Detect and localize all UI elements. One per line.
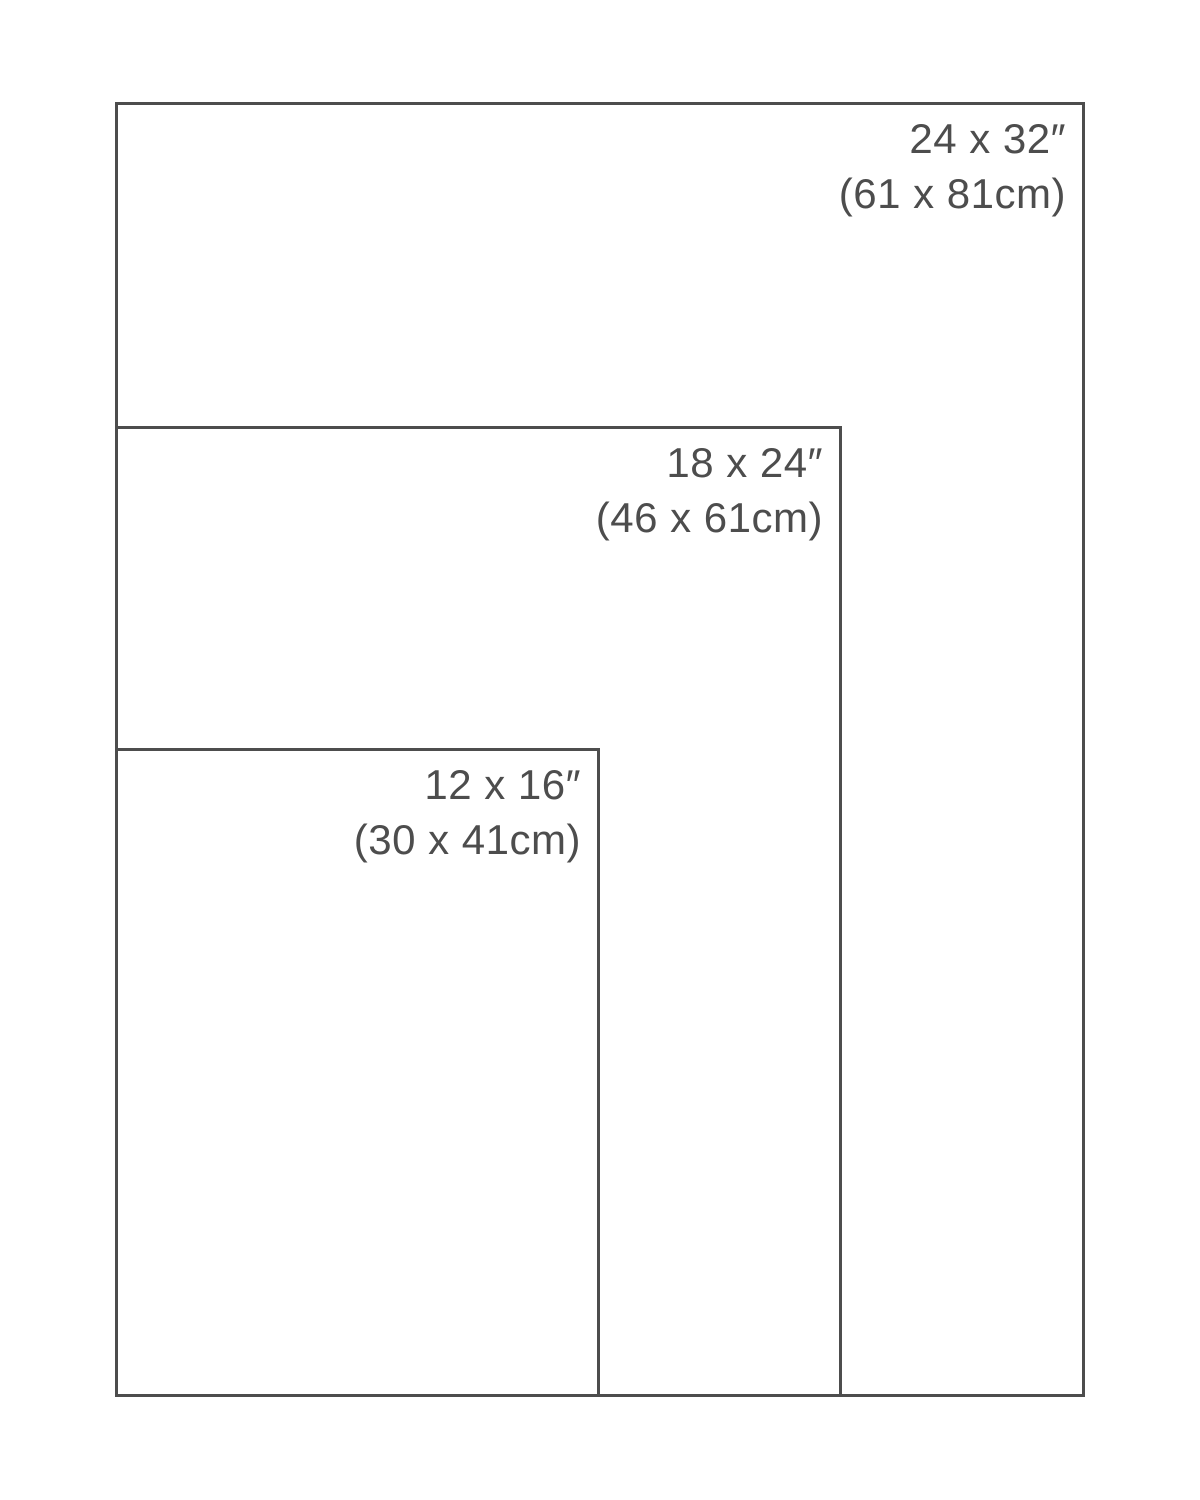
size-rect-12x16: 12 x 16″ (30 x 41cm): [115, 748, 600, 1397]
size-label-18x24: 18 x 24″ (46 x 61cm): [596, 435, 823, 545]
size-label-12x16-inches: 12 x 16″: [354, 757, 581, 812]
size-label-12x16: 12 x 16″ (30 x 41cm): [354, 757, 581, 867]
size-label-24x32: 24 x 32″ (61 x 81cm): [839, 111, 1066, 221]
size-label-18x24-cm: (46 x 61cm): [596, 490, 823, 545]
size-label-12x16-cm: (30 x 41cm): [354, 812, 581, 867]
size-label-24x32-cm: (61 x 81cm): [839, 166, 1066, 221]
size-label-18x24-inches: 18 x 24″: [596, 435, 823, 490]
size-guide-diagram: 24 x 32″ (61 x 81cm) 18 x 24″ (46 x 61cm…: [0, 0, 1200, 1500]
size-label-24x32-inches: 24 x 32″: [839, 111, 1066, 166]
